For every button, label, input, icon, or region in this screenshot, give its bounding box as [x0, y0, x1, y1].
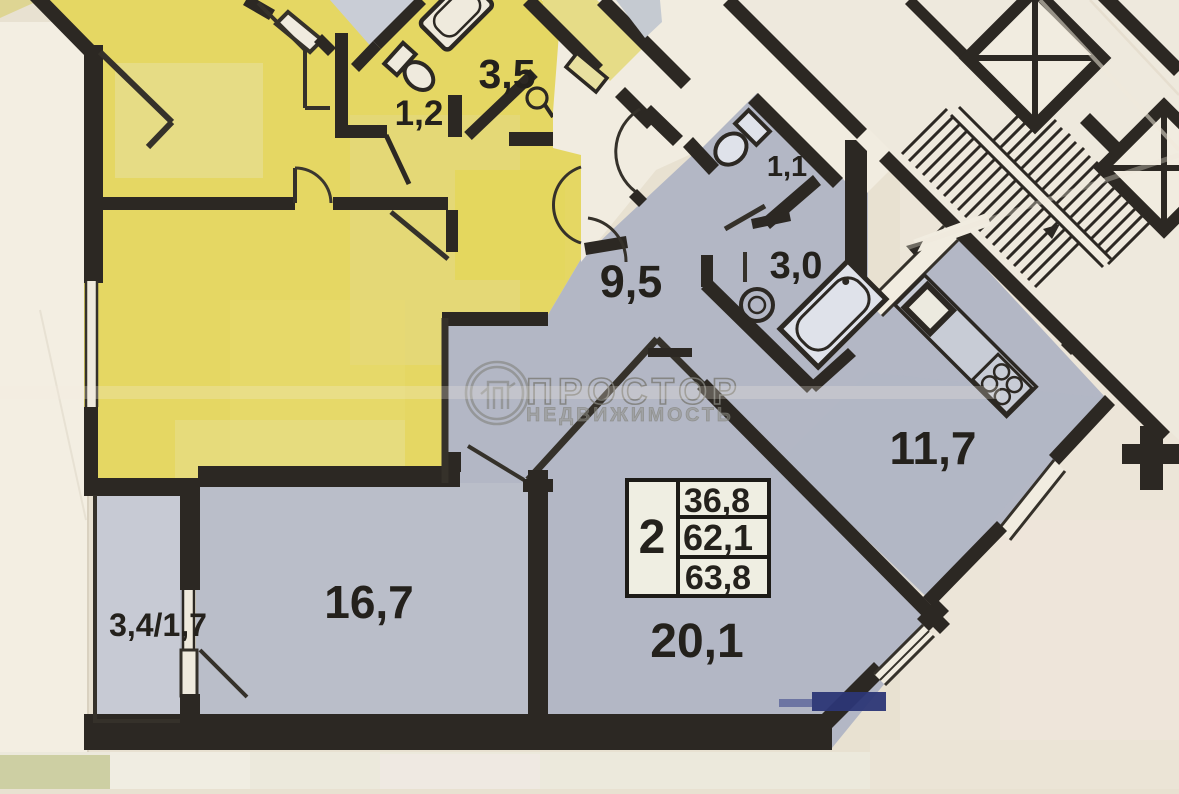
svg-text:3,0: 3,0	[770, 245, 823, 287]
svg-text:1,1: 1,1	[767, 151, 807, 183]
svg-text:63,8: 63,8	[685, 559, 751, 597]
svg-text:2: 2	[639, 511, 666, 564]
svg-text:62,1: 62,1	[683, 517, 753, 558]
svg-text:1,2: 1,2	[395, 94, 444, 133]
svg-text:16,7: 16,7	[324, 576, 414, 628]
svg-text:36,8: 36,8	[684, 482, 750, 520]
svg-text:20,1: 20,1	[650, 615, 743, 668]
svg-text:9,5: 9,5	[600, 256, 663, 307]
svg-text:11,7: 11,7	[890, 422, 977, 474]
svg-text:НЕДВИЖИМОСТЬ: НЕДВИЖИМОСТЬ	[526, 404, 734, 426]
svg-text:3,4/1,7: 3,4/1,7	[109, 607, 207, 643]
svg-text:3,5: 3,5	[479, 51, 536, 97]
